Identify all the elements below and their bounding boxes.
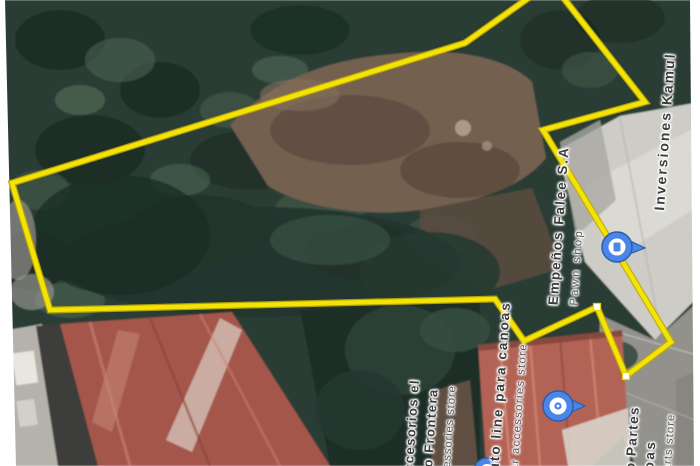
boundary-vertex-marker[interactable] bbox=[594, 304, 601, 311]
satellite-imagery bbox=[0, 0, 700, 466]
map-viewport: Inversiones Kamul Empeños Falee S.A Pawn… bbox=[0, 0, 700, 466]
pawn-glyph-icon bbox=[614, 243, 621, 252]
place-label-auto-partes-line2[interactable]: noas bbox=[642, 439, 658, 466]
boundary-vertex-marker[interactable] bbox=[623, 373, 630, 380]
imagery-layers bbox=[0, 0, 700, 466]
trees-bottom-center bbox=[300, 300, 490, 466]
